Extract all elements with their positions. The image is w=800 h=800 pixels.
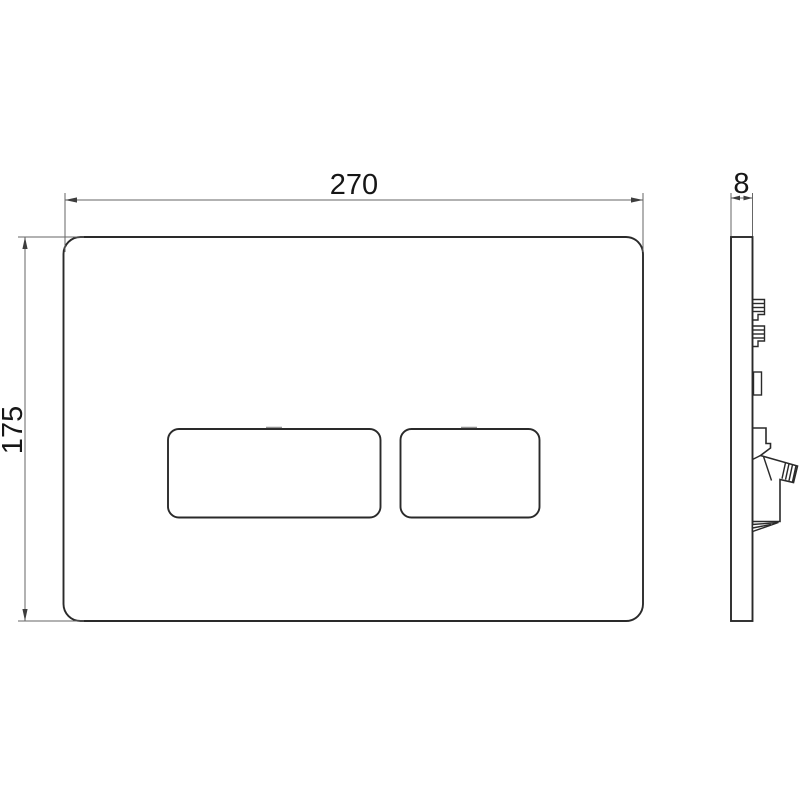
arrow-right-icon [631, 197, 643, 202]
arrow-left-icon [65, 197, 77, 202]
front-view [64, 237, 644, 621]
depth-dimension-label: 8 [733, 168, 749, 200]
mounting-hook [753, 428, 798, 532]
hook-hatch-line [782, 463, 786, 479]
hook-hatch-line [789, 465, 793, 481]
mounting-clip-top [753, 300, 765, 321]
hook-inner-line [753, 456, 761, 460]
plate-profile-body [731, 237, 753, 621]
mounting-clip-second [753, 326, 765, 347]
depth-dimension: 8 [731, 168, 753, 236]
large-flush-button [168, 429, 381, 518]
flush-plate-drawing: 270 175 8 [0, 0, 800, 800]
width-dimension-label: 270 [330, 169, 378, 201]
clip-top-outline [753, 300, 765, 321]
mounting-tab-small [754, 372, 762, 395]
clip-second-outline [753, 326, 765, 347]
hook-fold-line [764, 457, 772, 481]
small-flush-button [401, 429, 540, 518]
arrow-up-icon [22, 237, 27, 249]
arrow-down-icon [22, 609, 27, 621]
height-dimension-label: 175 [0, 406, 29, 454]
side-view [731, 237, 798, 621]
hook-hatch-line [786, 464, 790, 480]
technical-drawing-page: 270 175 8 [0, 0, 800, 800]
